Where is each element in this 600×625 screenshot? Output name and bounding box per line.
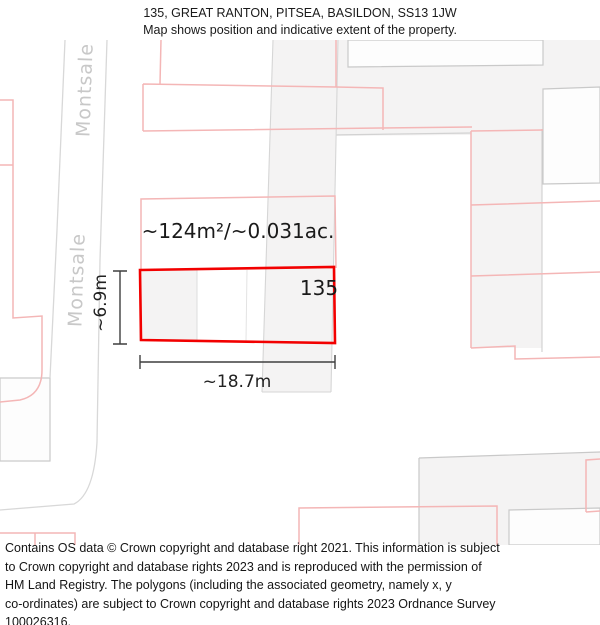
title-block: 135, GREAT RANTON, PITSEA, BASILDON, SS1… xyxy=(0,5,600,39)
buildings-gray xyxy=(140,40,600,545)
property-map-page: 135, GREAT RANTON, PITSEA, BASILDON, SS1… xyxy=(0,0,600,625)
height-dimension-label: ~6.9m xyxy=(91,274,111,332)
building-outline xyxy=(543,87,600,184)
building-block xyxy=(262,40,338,392)
building-outline xyxy=(0,378,50,461)
page-subtitle: Map shows position and indicative extent… xyxy=(0,22,600,39)
building-block xyxy=(140,270,197,340)
footer-line: Contains OS data © Crown copyright and d… xyxy=(5,539,597,558)
building-block xyxy=(471,129,542,348)
footer-line: HM Land Registry. The polygons (includin… xyxy=(5,576,597,595)
building-outline xyxy=(348,40,543,67)
map-area: Montsale Montsale ~124m²/~0.031ac. 135 ~… xyxy=(0,40,600,545)
footer-line: co-ordinates) are subject to Crown copyr… xyxy=(5,595,597,614)
building-edge xyxy=(246,270,247,341)
parcel-outline xyxy=(0,100,42,402)
footer-line: to Crown copyright and database rights 2… xyxy=(5,558,597,577)
width-dimension-label: ~18.7m xyxy=(203,372,272,392)
copyright-footer: Contains OS data © Crown copyright and d… xyxy=(5,539,597,625)
height-dimension-line xyxy=(113,271,127,344)
road-label-montsale-top: Montsale xyxy=(72,43,97,138)
page-title: 135, GREAT RANTON, PITSEA, BASILDON, SS1… xyxy=(0,5,600,22)
road-label-montsale-bottom: Montsale xyxy=(64,233,89,328)
parcel-outline xyxy=(160,40,161,84)
plot-area-label: ~124m²/~0.031ac. xyxy=(142,219,335,243)
road-edge-left xyxy=(50,40,65,378)
plot-number-label: 135 xyxy=(300,276,338,300)
footer-line: 100026316. xyxy=(5,613,597,625)
